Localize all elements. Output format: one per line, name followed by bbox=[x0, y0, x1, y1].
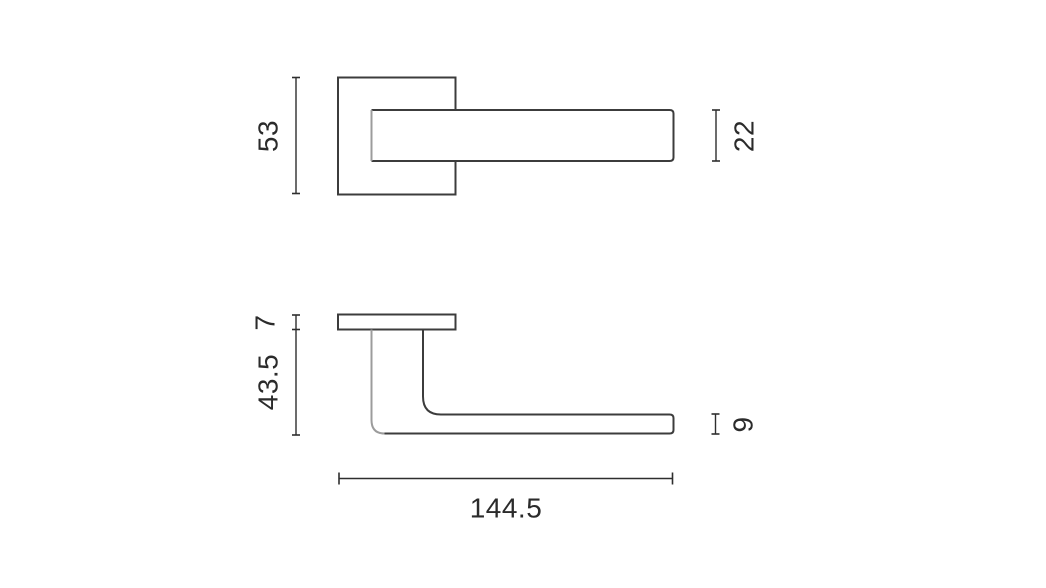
front-dim-rosette-height-label: 53 bbox=[253, 120, 284, 152]
side-dim-projection-label: 43.5 bbox=[253, 354, 284, 411]
side-rosette-outline bbox=[338, 315, 456, 330]
front-lever-fill bbox=[372, 110, 674, 161]
side-view: 7 43.5 9 144.5 bbox=[250, 314, 759, 523]
side-dim-total-length: 144.5 bbox=[339, 473, 673, 524]
side-dim-lever-thickness: 9 bbox=[712, 414, 759, 434]
side-dim-total-length-label: 144.5 bbox=[470, 493, 543, 524]
side-dim-projection-group: 7 43.5 bbox=[250, 314, 301, 435]
front-view: 53 22 bbox=[253, 78, 760, 195]
side-lever-outline bbox=[385, 330, 674, 434]
front-dim-lever-height: 22 bbox=[712, 110, 760, 161]
side-dim-rosette-thickness-label: 7 bbox=[250, 314, 281, 330]
side-neck-joint-edge bbox=[372, 330, 385, 434]
technical-drawing-canvas: 53 22 7 bbox=[0, 0, 1046, 588]
front-dim-lever-height-label: 22 bbox=[729, 120, 760, 152]
side-dim-lever-thickness-label: 9 bbox=[728, 416, 759, 432]
technical-drawing-page: 53 22 7 bbox=[0, 0, 1046, 588]
front-dim-rosette-height: 53 bbox=[253, 78, 301, 194]
